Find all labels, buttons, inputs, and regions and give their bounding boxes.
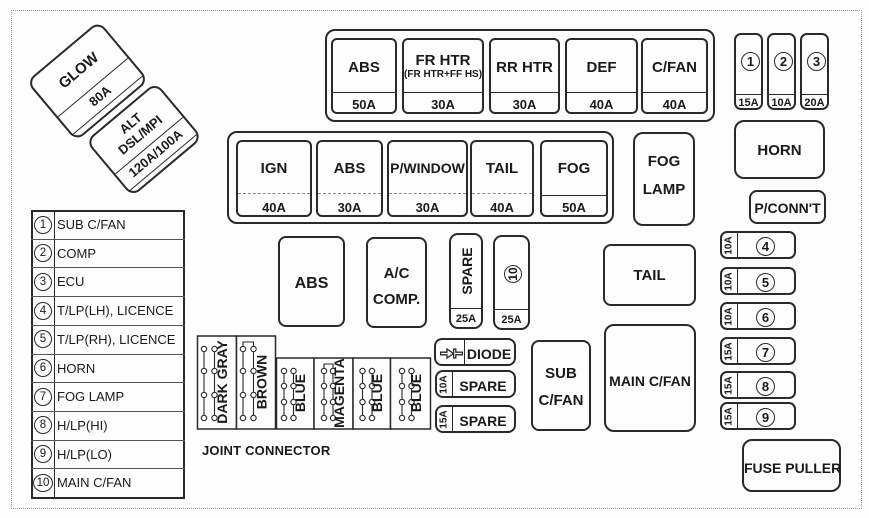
svg-text:BLUE: BLUE — [369, 374, 385, 412]
svg-text:BLUE: BLUE — [292, 374, 308, 412]
svg-text:MAGENTA: MAGENTA — [331, 358, 347, 428]
svg-text:BROWN: BROWN — [254, 355, 270, 409]
svg-text:BLUE: BLUE — [408, 374, 424, 412]
svg-text:DARK GRAY: DARK GRAY — [214, 340, 230, 424]
